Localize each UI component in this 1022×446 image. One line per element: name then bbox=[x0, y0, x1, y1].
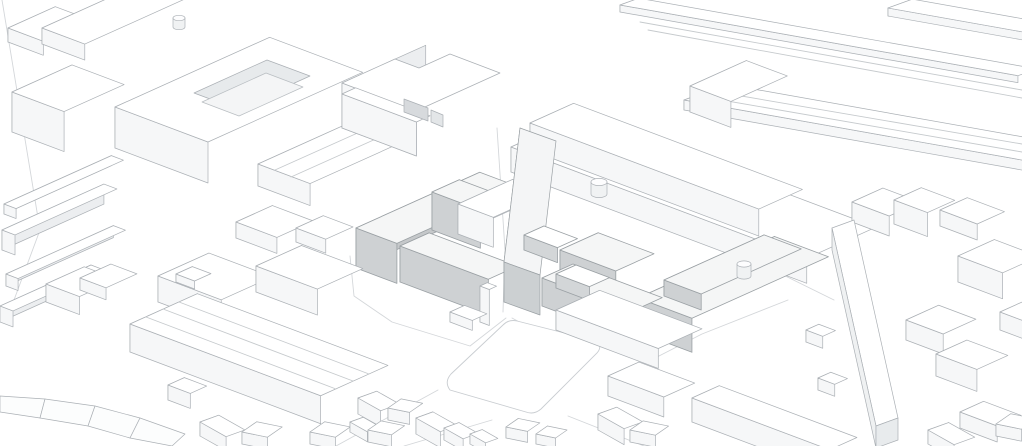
shed-bar-b-roof bbox=[2, 184, 117, 235]
silo-cylinder-b-top bbox=[591, 178, 607, 185]
axonometric-massing-diagram bbox=[0, 0, 1022, 446]
chimney-cylinder-top bbox=[173, 15, 185, 20]
curved-shed-segment-a bbox=[0, 396, 45, 418]
curved-shed-segment-b bbox=[40, 399, 95, 426]
silo-cylinder-c-top bbox=[737, 261, 751, 267]
curved-shed-segment-d bbox=[130, 418, 185, 446]
stair-sliver-wall-front bbox=[480, 286, 489, 326]
facade-recess-panel-b bbox=[431, 110, 443, 127]
shed-bar-a-roof bbox=[4, 156, 123, 209]
platform-edge-a bbox=[710, 98, 1022, 152]
site-model-canvas bbox=[0, 0, 1022, 446]
